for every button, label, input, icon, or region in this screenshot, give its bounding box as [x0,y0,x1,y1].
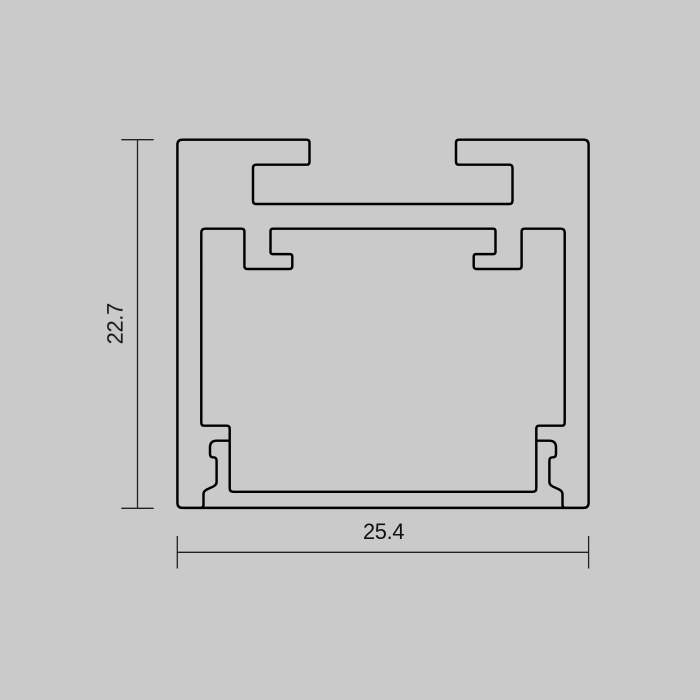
svg-text:25.4: 25.4 [363,519,404,544]
svg-text:22.7: 22.7 [103,303,128,344]
